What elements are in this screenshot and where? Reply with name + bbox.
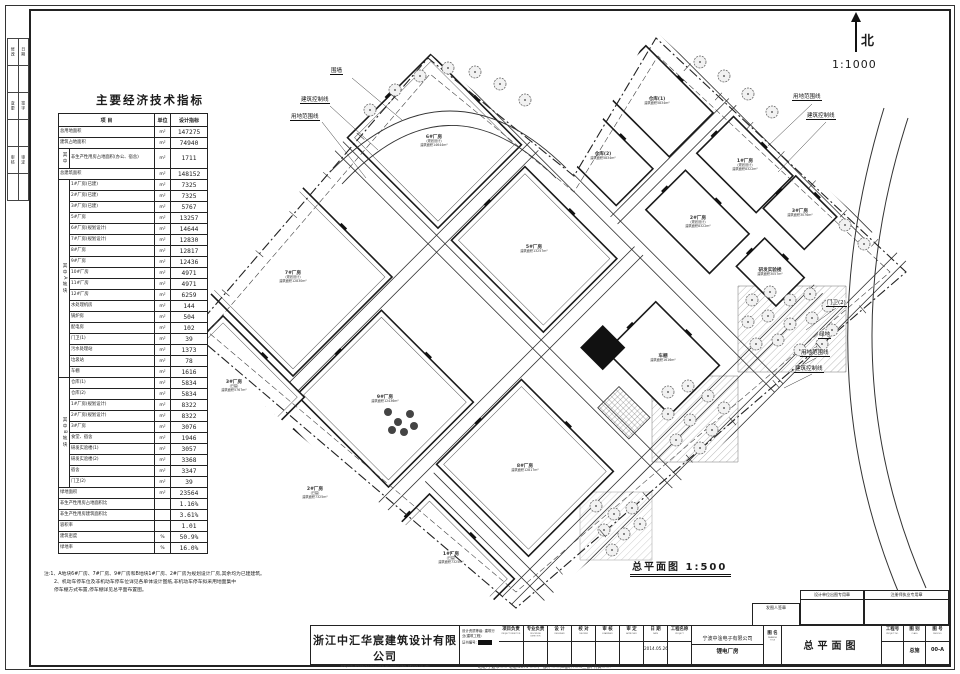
- table-row: 非生产性用房占地面积比1.16%: [59, 499, 208, 510]
- table-row: 门卫(2)m²39: [59, 477, 208, 488]
- item-cell: 仓库(2): [70, 389, 155, 400]
- project-no-value: [882, 642, 903, 647]
- drawing-class-label-en: CLASS: [906, 632, 923, 634]
- table-row: 容积率1.01: [59, 521, 208, 532]
- unit-cell: m²: [155, 378, 171, 389]
- indicators-table: 项 目 单位 设计指标 总用地面积m²147275建筑占地面积m²74940其中…: [58, 113, 208, 554]
- signature-column: 校 对CHECKED: [571, 626, 595, 664]
- unit-cell: m²: [155, 180, 171, 191]
- table-row: 垃圾站m²78: [59, 356, 208, 367]
- item-cell: 污水处理站: [70, 345, 155, 356]
- value-cell: 5767: [171, 202, 208, 213]
- unit-cell: m²: [155, 455, 171, 466]
- item-cell: 3#厂房: [70, 422, 155, 433]
- unit-cell: m²: [155, 290, 171, 301]
- table-row: 绿地面积m²23564: [59, 488, 208, 499]
- red-line-label-2: 用地范围线: [792, 92, 822, 101]
- item-cell: 8#厂房: [70, 246, 155, 257]
- table-row: 门卫(1)m²39: [59, 334, 208, 345]
- unit-cell: m²: [155, 213, 171, 224]
- green-label: 绿地: [818, 330, 831, 339]
- table-row: 绿地率%16.0%: [59, 543, 208, 554]
- unit-cell: [155, 521, 171, 532]
- unit-cell: m²: [155, 312, 171, 323]
- col-header-item: 项 目: [59, 114, 155, 127]
- revision-row: 变更签字: [8, 93, 29, 120]
- unit-cell: m²: [155, 345, 171, 356]
- signature-column: 项目负责PROJECT DIRECTOR: [499, 626, 523, 664]
- value-cell: 1.01: [171, 521, 208, 532]
- value-cell: 7325: [171, 180, 208, 191]
- unit-cell: m²: [155, 138, 171, 149]
- revision-row: [8, 174, 29, 201]
- revision-row: [8, 66, 29, 93]
- value-cell: 5834: [171, 389, 208, 400]
- cert-number-smudge: [478, 640, 492, 645]
- value-cell: 16.0%: [171, 543, 208, 554]
- item-cell: 绿地面积: [59, 488, 155, 499]
- table-row: 2#厂房(规划设计)m²8322: [59, 411, 208, 422]
- item-cell: 非生产性用房占地面积(办公、宿舍): [70, 149, 155, 169]
- drawing-name-header-cell: 图 名 DRAWING TITLE: [763, 626, 781, 664]
- value-cell: 4971: [171, 279, 208, 290]
- table-row: 5#厂房m²13257: [59, 213, 208, 224]
- control-line-label-2: 建筑控制线: [806, 111, 836, 120]
- unit-cell: m²: [155, 279, 171, 290]
- table-row: 非生产性用房建筑面积比3.61%: [59, 510, 208, 521]
- unit-cell: m²: [155, 202, 171, 213]
- item-cell: 容积率: [59, 521, 155, 532]
- unit-cell: m²: [155, 334, 171, 345]
- grade-label: 设计资质等级:: [462, 629, 484, 633]
- title-block: 浙江中汇华宸建筑设计有限公司 ZHEJIANG ZHONGHUI HUACHEN…: [310, 625, 950, 665]
- signature-column: 审 核EXAMINED: [595, 626, 619, 664]
- value-cell: 147275: [171, 127, 208, 138]
- revision-cell: [8, 174, 19, 201]
- unit-cell: m²: [155, 301, 171, 312]
- drawing-no-cell: 图 号 DWG NO. 00-A: [925, 626, 949, 664]
- plan-caption: 总平面图 1:500: [630, 558, 731, 577]
- drawing-sheet: { "colors":{"paper":"#ffffff","ink":"#1c…: [0, 0, 960, 674]
- item-cell: 12#厂房: [70, 290, 155, 301]
- design-unit-stamp-box: 设计单位出图专用章: [800, 590, 864, 625]
- table-row: 10#厂房m²4971: [59, 268, 208, 279]
- credentials-cell: 设计资质等级: 建筑行业(建筑工程) 证书编号:: [459, 626, 499, 664]
- value-cell: 3347: [171, 466, 208, 477]
- table-row: 仓库(2)m²5834: [59, 389, 208, 400]
- footer-contact-note: 地址:宁波市…… 电话:0574-……(一部); ……(二部); ……(三部) …: [478, 664, 948, 670]
- value-cell: 1711: [171, 149, 208, 169]
- item-cell: 绿地率: [59, 543, 155, 554]
- control-line-label: 建筑控制线: [300, 95, 330, 104]
- value-cell: 3368: [171, 455, 208, 466]
- item-cell: 11#厂房: [70, 279, 155, 290]
- item-cell: 锅炉房: [70, 312, 155, 323]
- unit-cell: m²: [155, 466, 171, 477]
- item-cell: 2#厂房(规划设计): [70, 411, 155, 422]
- item-cell: 仓库(1): [70, 378, 155, 389]
- unit-cell: m²: [155, 191, 171, 202]
- issuer-stamp-box: 发图人签章: [752, 603, 800, 626]
- project-no-label: 工程号: [882, 626, 903, 632]
- table-row: 12#厂房m²6259: [59, 290, 208, 301]
- unit-cell: m²: [155, 246, 171, 257]
- col-header-value: 设计指标: [171, 114, 208, 127]
- value-cell: 39: [171, 334, 208, 345]
- value-cell: 12830: [171, 235, 208, 246]
- project-no-cell: 工程号 PROJECT NO.: [881, 626, 903, 664]
- item-cell: 宿舍: [70, 466, 155, 477]
- item-cell: 非生产性用房建筑面积比: [59, 510, 155, 521]
- drawing-class-value: 总施: [904, 642, 925, 654]
- revision-cell: 日期: [18, 39, 29, 66]
- unit-cell: m²: [155, 389, 171, 400]
- drawing-name-label-en: DRAWING TITLE: [766, 637, 780, 642]
- table-row: 9#厂房m²12436: [59, 257, 208, 268]
- project-no-label-en: PROJECT NO.: [884, 632, 901, 634]
- value-cell: 78: [171, 356, 208, 367]
- unit-cell: m²: [155, 169, 171, 180]
- revision-row: [8, 120, 29, 147]
- table-row: 建筑密度%50.9%: [59, 532, 208, 543]
- note-line: 停车棚方式布置,停车棚详见总平面布置图。: [44, 587, 312, 595]
- item-cell: 1#厂房(已建): [70, 180, 155, 191]
- project-owner: 宁波中淦电子有限公司: [692, 633, 763, 645]
- design-unit-stamp-label: 设计单位出图专用章: [801, 591, 863, 600]
- value-cell: 74940: [171, 138, 208, 149]
- north-arrow-line: [855, 16, 857, 52]
- table-row: 6#厂房(规划设计)m²14644: [59, 224, 208, 235]
- value-cell: 1946: [171, 433, 208, 444]
- north-label: 北: [861, 30, 874, 49]
- unit-cell: m²: [155, 235, 171, 246]
- cert-label: 证书编号:: [462, 640, 477, 644]
- value-cell: 8322: [171, 400, 208, 411]
- red-line-label: 用地范围线: [290, 112, 320, 121]
- indicators-title: 主要经济技术指标: [96, 92, 204, 108]
- value-cell: 102: [171, 323, 208, 334]
- drawing-title-cell: 总平面图: [781, 626, 881, 664]
- note-line: 注:1、A地块6#厂房、7#厂房、9#厂房和B地块1#厂房、2#厂房为规划设计厂…: [44, 571, 312, 579]
- drawing-no-value: 00-A: [926, 642, 949, 653]
- company-name: 浙江中汇华宸建筑设计有限公司: [311, 632, 459, 664]
- table-row: 11#厂房m²4971: [59, 279, 208, 290]
- value-cell: 5834: [171, 378, 208, 389]
- unit-cell: m²: [155, 444, 171, 455]
- value-cell: 8322: [171, 411, 208, 422]
- value-cell: 12817: [171, 246, 208, 257]
- revision-row: 修改日期: [8, 39, 29, 66]
- registered-stamp-label: 注册师执业专用章: [865, 591, 948, 600]
- company-cell: 浙江中汇华宸建筑设计有限公司 ZHEJIANG ZHONGHUI HUACHEN…: [311, 626, 459, 664]
- value-cell: 148152: [171, 169, 208, 180]
- table-row: 7#厂房(规划设计)m²12830: [59, 235, 208, 246]
- table-row: 2#厂房(已建)m²7325: [59, 191, 208, 202]
- signature-column: 专业负责DISCIPLINE DIRECTOR: [523, 626, 547, 664]
- item-cell: 门卫(2): [70, 477, 155, 488]
- signature-columns: 项目负责PROJECT DIRECTOR专业负责DISCIPLINE DIREC…: [499, 626, 691, 664]
- revision-cell: 变更: [8, 93, 19, 120]
- revision-cell: [18, 66, 29, 93]
- item-cell: 垃圾站: [70, 356, 155, 367]
- item-cell: 5#厂房: [70, 213, 155, 224]
- table-row: 其中非生产性用房占地面积(办公、宿舍)m²1711: [59, 149, 208, 169]
- value-cell: 50.9%: [171, 532, 208, 543]
- unit-cell: m²: [155, 367, 171, 378]
- item-cell: 3#厂房(已建): [70, 202, 155, 213]
- value-cell: 1616: [171, 367, 208, 378]
- table-row: 其中B地块仓库(1)m²5834: [59, 378, 208, 389]
- unit-cell: m²: [155, 127, 171, 138]
- revision-cell: [18, 174, 29, 201]
- item-cell: 研发实验楼(2): [70, 455, 155, 466]
- item-cell: 7#厂房(规划设计): [70, 235, 155, 246]
- value-cell: 3076: [171, 422, 208, 433]
- table-notes: 注:1、A地块6#厂房、7#厂房、9#厂房和B地块1#厂房、2#厂房为规划设计厂…: [44, 571, 312, 595]
- value-cell: 1.16%: [171, 499, 208, 510]
- drawing-name-label: 图 名: [764, 630, 781, 636]
- project-name-cell: 宁波中淦电子有限公司 锂电厂房: [691, 626, 763, 664]
- item-cell: 9#厂房: [70, 257, 155, 268]
- value-cell: 1373: [171, 345, 208, 356]
- drawing-no-label: 图 号: [926, 626, 949, 632]
- unit-cell: [155, 499, 171, 510]
- table-row: 锅炉房m²504: [59, 312, 208, 323]
- signature-column: 审 定APPROVED: [619, 626, 643, 664]
- unit-cell: [155, 510, 171, 521]
- revision-cell: [8, 66, 19, 93]
- table-row: 配电房m²102: [59, 323, 208, 334]
- value-cell: 14644: [171, 224, 208, 235]
- item-cell: 水处理机房: [70, 301, 155, 312]
- revision-cell: [8, 120, 19, 147]
- value-cell: 7325: [171, 191, 208, 202]
- drawing-title: 总平面图: [782, 626, 881, 652]
- table-row: 车棚m²1616: [59, 367, 208, 378]
- group-cell: 其中A地块: [59, 180, 70, 378]
- value-cell: 3057: [171, 444, 208, 455]
- value-cell: 4971: [171, 268, 208, 279]
- value-cell: 39: [171, 477, 208, 488]
- value-cell: 13257: [171, 213, 208, 224]
- drawing-no-label-en: DWG NO.: [928, 632, 946, 634]
- unit-cell: m²: [155, 477, 171, 488]
- item-cell: 总用地面积: [59, 127, 155, 138]
- company-name-en: ZHEJIANG ZHONGHUI HUACHEN ARCHITECTURAL …: [318, 664, 451, 668]
- unit-cell: m²: [155, 433, 171, 444]
- signature-column: 设 计DESIGNED: [547, 626, 571, 664]
- revision-cell: [18, 120, 29, 147]
- table-row: 3#厂房m²3076: [59, 422, 208, 433]
- indicators-table-wrap: 项 目 单位 设计指标 总用地面积m²147275建筑占地面积m²74940其中…: [58, 113, 208, 554]
- table-row: 研发实验楼(2)m²3368: [59, 455, 208, 466]
- gate2-label: 门卫(2): [826, 298, 847, 307]
- table-row: 污水处理站m²1373: [59, 345, 208, 356]
- drawing-class-cell: 图 别 CLASS 总施: [903, 626, 925, 664]
- unit-cell: m²: [155, 411, 171, 422]
- item-cell: 门卫(1): [70, 334, 155, 345]
- item-cell: 建筑占地面积: [59, 138, 155, 149]
- item-cell: 2#厂房(已建): [70, 191, 155, 202]
- item-cell: 1#厂房(规划设计): [70, 400, 155, 411]
- table-row: 其中A地块1#厂房(已建)m²7325: [59, 180, 208, 191]
- plan-scale: 1:1000: [832, 58, 877, 71]
- col-header-unit: 单位: [155, 114, 171, 127]
- unit-cell: m²: [155, 400, 171, 411]
- signature-column: 日 期DATE2014.05.26: [643, 626, 667, 664]
- item-cell: 配电房: [70, 323, 155, 334]
- unit-cell: m²: [155, 149, 171, 169]
- item-cell: 研发实验楼(1): [70, 444, 155, 455]
- unit-cell: m²: [155, 224, 171, 235]
- item-cell: 10#厂房: [70, 268, 155, 279]
- red-line-label-3: 用地范围线: [800, 348, 830, 357]
- drawing-class-label: 图 别: [904, 626, 925, 632]
- unit-cell: m²: [155, 422, 171, 433]
- table-row: 总用地面积m²147275: [59, 127, 208, 138]
- group-cell: 其中B地块: [59, 378, 70, 488]
- project-title: 锂电厂房: [692, 645, 763, 657]
- unit-cell: m²: [155, 323, 171, 334]
- table-row: 1#厂房(规划设计)m²8322: [59, 400, 208, 411]
- revision-cell: 审定: [18, 147, 29, 174]
- unit-cell: %: [155, 543, 171, 554]
- revision-cell: 修改: [8, 39, 19, 66]
- unit-cell: %: [155, 532, 171, 543]
- signature-column: 工程名称PROJECT: [667, 626, 691, 664]
- item-cell: 非生产性用房占地面积比: [59, 499, 155, 510]
- value-cell: 3.61%: [171, 510, 208, 521]
- revision-cell: 签字: [18, 93, 29, 120]
- table-row: 总建筑面积m²148152: [59, 169, 208, 180]
- note-line: 2、机动车停车位及非机动车停车位详见各单体设计图纸,非机动车停车拟采用地面集中: [44, 579, 312, 587]
- table-row: 研发实验楼(1)m²3057: [59, 444, 208, 455]
- group-cell: 其中: [59, 149, 70, 169]
- unit-cell: m²: [155, 488, 171, 499]
- table-row: 食堂、宿舍m²1946: [59, 433, 208, 444]
- revision-row: 审核审定: [8, 147, 29, 174]
- value-cell: 6259: [171, 290, 208, 301]
- table-row: 3#厂房(已建)m²5767: [59, 202, 208, 213]
- unit-cell: m²: [155, 257, 171, 268]
- item-cell: 建筑密度: [59, 532, 155, 543]
- table-row: 宿舍m²3347: [59, 466, 208, 477]
- item-cell: 食堂、宿舍: [70, 433, 155, 444]
- revision-strip: 修改日期变更签字审核审定: [7, 38, 29, 201]
- table-row: 建筑占地面积m²74940: [59, 138, 208, 149]
- revision-cell: 审核: [8, 147, 19, 174]
- item-cell: 6#厂房(规划设计): [70, 224, 155, 235]
- value-cell: 12436: [171, 257, 208, 268]
- value-cell: 144: [171, 301, 208, 312]
- registered-stamp-box: 注册师执业专用章: [864, 590, 949, 625]
- value-cell: 504: [171, 312, 208, 323]
- fence-label: 围墙: [330, 66, 343, 75]
- unit-cell: m²: [155, 356, 171, 367]
- item-cell: 车棚: [70, 367, 155, 378]
- unit-cell: m²: [155, 268, 171, 279]
- table-row: 水处理机房m²144: [59, 301, 208, 312]
- item-cell: 总建筑面积: [59, 169, 155, 180]
- control-line-label-3: 建筑控制线: [794, 364, 824, 373]
- value-cell: 23564: [171, 488, 208, 499]
- table-row: 8#厂房m²12817: [59, 246, 208, 257]
